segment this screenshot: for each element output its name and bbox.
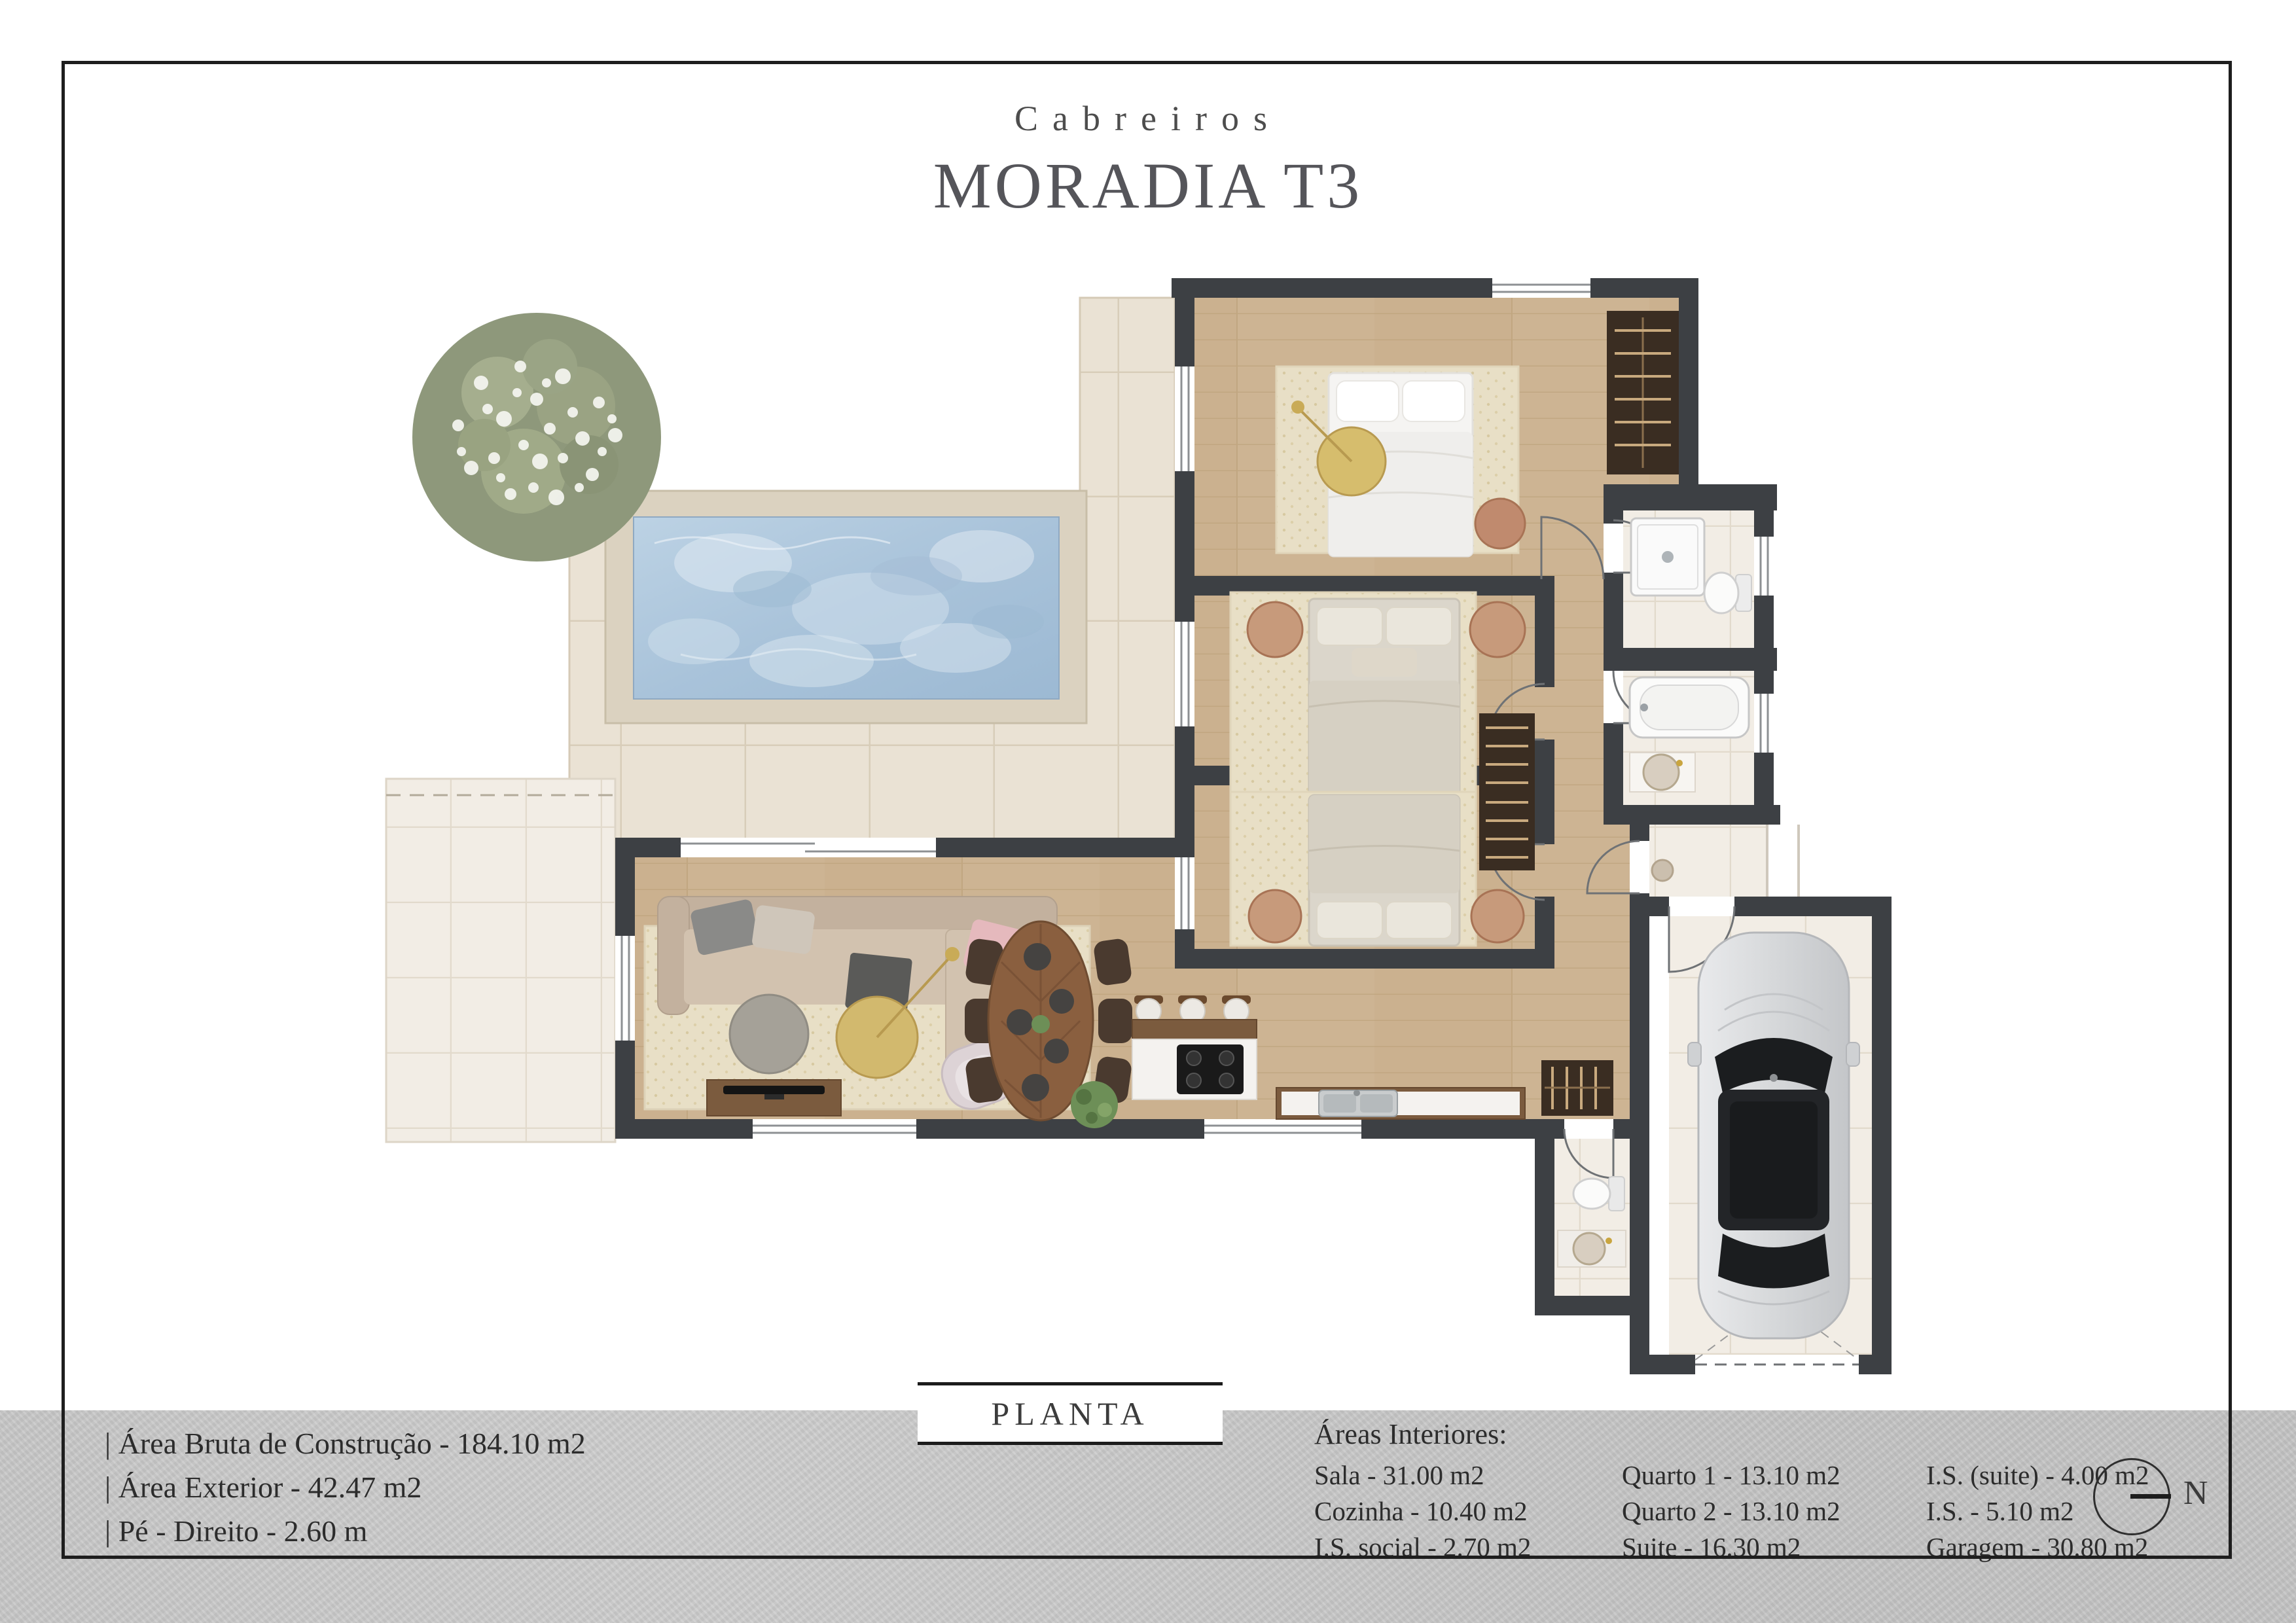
page-title: MORADIA T3 [0, 148, 2296, 223]
window-main-bath [1754, 694, 1774, 753]
spec-exterior-area: | Área Exterior - 42.47 m2 [105, 1465, 586, 1509]
window-suite-left [1175, 366, 1194, 471]
floor-plan-drawing [0, 0, 2296, 1623]
tv-console [707, 1080, 841, 1116]
spec-gross-area: | Área Bruta de Construção - 184.10 m2 [105, 1421, 586, 1465]
suite-pouf [1475, 499, 1525, 548]
areas-column-1: Sala - 31.00 m2 Cozinha - 10.40 m2 I.S. … [1314, 1457, 1622, 1565]
area-sala: Sala - 31.00 m2 [1314, 1457, 1622, 1493]
area-quarto2: Quarto 2 - 13.10 m2 [1622, 1493, 1926, 1529]
window-suite-bath [1754, 537, 1774, 596]
bedroom2-pouf-left [1247, 602, 1302, 657]
title-block: Cabreiros MORADIA T3 [0, 98, 2296, 223]
bedroom2-pouf-right [1470, 602, 1525, 657]
bedroom3-bed [1309, 795, 1460, 946]
plan-label-box: PLANTA [918, 1382, 1223, 1445]
pool [605, 491, 1086, 723]
area-cozinha: Cozinha - 10.40 m2 [1314, 1493, 1622, 1529]
bath-sink [1630, 753, 1695, 792]
kitchen-island [1132, 1020, 1257, 1099]
wc-floor [1554, 1139, 1630, 1296]
bathtub [1630, 677, 1749, 738]
window-living-left [615, 936, 635, 1041]
interior-areas-grid: Sala - 31.00 m2 Cozinha - 10.40 m2 I.S. … [1314, 1457, 2149, 1565]
sliding-door-living [681, 838, 936, 857]
window-bedroom2-left [1175, 622, 1194, 726]
toilet-suite [1704, 573, 1751, 613]
bedroom3-pouf-right [1471, 890, 1524, 942]
area-garagem: Garagem - 30.80 m2 [1926, 1529, 2149, 1565]
garage [1688, 933, 1859, 1338]
tree [412, 313, 661, 562]
kitchen-sink [1319, 1090, 1397, 1116]
window-kitchen-bottom [1204, 1119, 1361, 1139]
interior-areas-header: Áreas Interiores: [1314, 1418, 2149, 1451]
area-suite: Suite - 16.30 m2 [1622, 1529, 1926, 1565]
suite-wardrobe [1607, 311, 1679, 474]
wc-sink [1558, 1230, 1626, 1267]
window-top-bedroom [1492, 278, 1590, 298]
car [1688, 933, 1859, 1338]
toilet-wc [1573, 1177, 1624, 1211]
project-name: Cabreiros [0, 98, 2296, 139]
dining-area [965, 921, 1133, 1128]
areas-column-2: Quarto 1 - 13.10 m2 Quarto 2 - 13.10 m2 … [1622, 1457, 1926, 1565]
spec-ceiling-height: | Pé - Direito - 2.60 m [105, 1509, 586, 1553]
spec-list: | Área Bruta de Construção - 184.10 m2 |… [105, 1421, 586, 1553]
hall-closet [1541, 1060, 1613, 1116]
north-compass-icon [2093, 1458, 2170, 1535]
bedroom-3 [1230, 789, 1535, 946]
window-living-bottom [753, 1119, 916, 1139]
shower [1631, 518, 1704, 596]
plan-label: PLANTA [991, 1395, 1149, 1433]
porch-pot [1652, 860, 1673, 881]
floor-plant [1071, 1081, 1118, 1128]
table-plant [1031, 1015, 1050, 1033]
bedroom2-bed [1309, 599, 1460, 795]
side-patio [386, 779, 615, 1142]
compass-needle [2130, 1494, 2171, 1499]
bedroom3-pouf-left [1249, 890, 1301, 942]
interior-areas: Áreas Interiores: Sala - 31.00 m2 Cozinh… [1314, 1418, 2149, 1565]
cooktop [1177, 1044, 1244, 1094]
coffee-table [730, 995, 808, 1073]
bedroom3-wardrobe [1479, 789, 1535, 870]
compass-north-label: N [2183, 1474, 2208, 1512]
sink-counter [1276, 1088, 1525, 1119]
area-quarto1: Quarto 1 - 13.10 m2 [1622, 1457, 1926, 1493]
area-is-social: I.S. social - 2.70 m2 [1314, 1529, 1622, 1565]
window-bedroom3-left [1175, 857, 1194, 929]
floor-plan-sheet: Cabreiros MORADIA T3 [0, 0, 2296, 1623]
